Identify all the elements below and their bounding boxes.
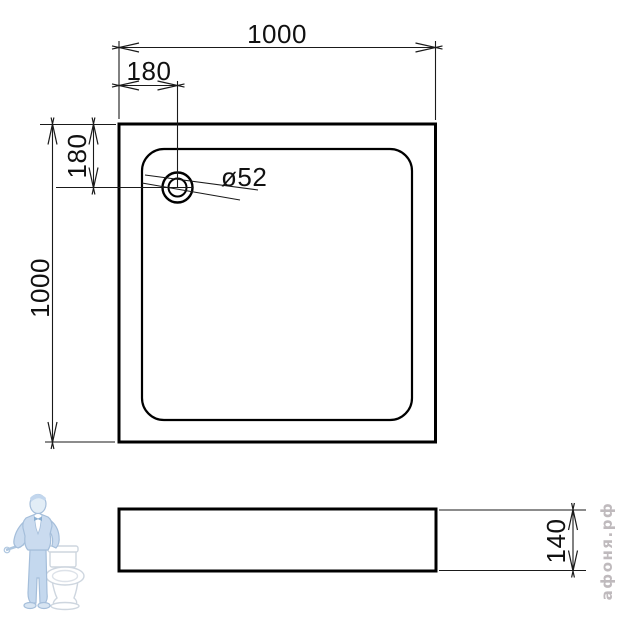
arrowhead (112, 43, 139, 49)
shower-tray-drawing: 1000 180 180 1000 ø52 (0, 0, 620, 621)
technical-drawing-page: 1000 180 180 1000 ø52 (0, 0, 620, 621)
toilet-base (51, 603, 79, 610)
arrowhead (416, 43, 443, 49)
plumber-watermark-logo (4, 494, 84, 610)
toilet-bowl-lid (46, 567, 84, 585)
plumber-shoe (24, 603, 36, 609)
tray-side-profile (119, 509, 436, 571)
tray-outer-edge (119, 124, 436, 442)
dim-drain-offset-horizontal: 180 (112, 56, 185, 188)
arrowhead (416, 46, 443, 52)
plumber-shoe (38, 603, 50, 609)
dim-drain-offset-horizontal-label: 180 (127, 56, 172, 86)
dim-drain-diameter-label: ø52 (221, 162, 267, 192)
dim-side-height-label: 140 (541, 519, 571, 564)
side-view (119, 509, 436, 571)
toilet-icon (46, 546, 84, 610)
dim-left-height-label: 1000 (25, 258, 55, 318)
top-view (119, 124, 436, 442)
arrowhead (112, 46, 139, 52)
dim-side-height: 140 (439, 503, 586, 578)
dim-top-width-label: 1000 (247, 19, 307, 49)
site-watermark-text: афоня.рф (598, 502, 616, 601)
dim-drain-offset-vertical-label: 180 (62, 134, 92, 179)
plumber-legs (28, 550, 47, 603)
